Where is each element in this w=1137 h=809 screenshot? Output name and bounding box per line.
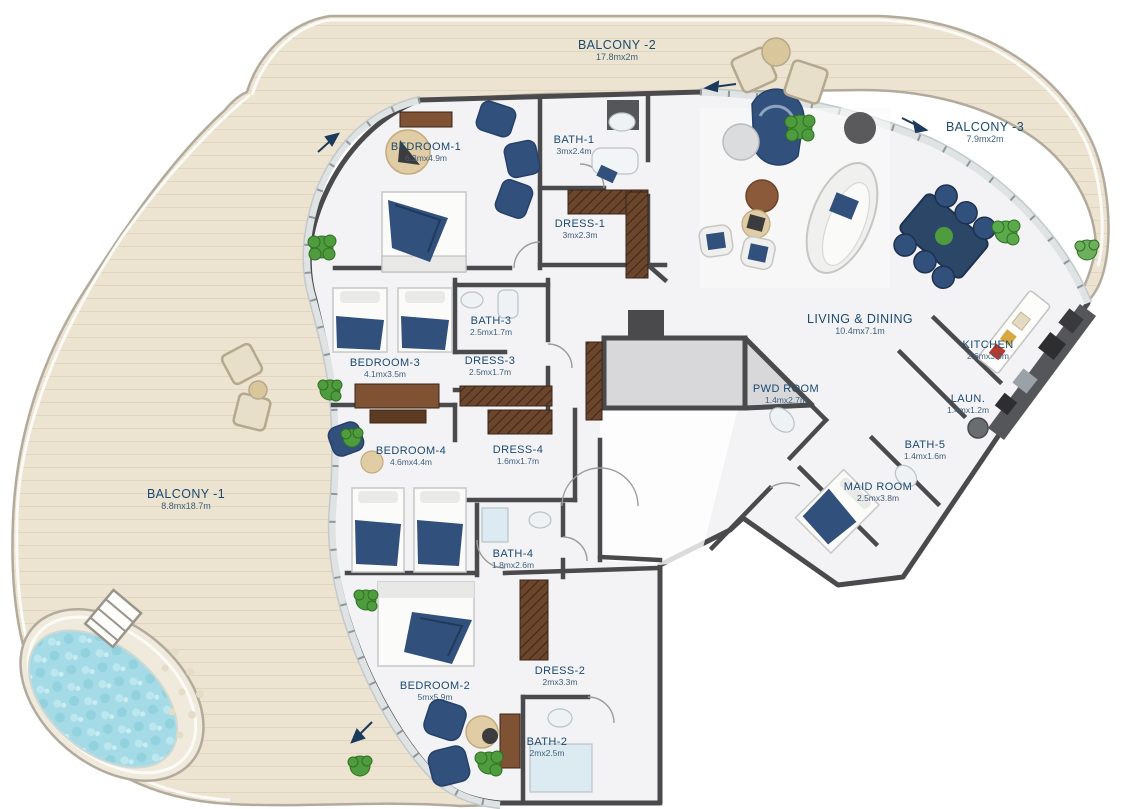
floor-plan-drawing <box>0 0 1137 809</box>
washing-machine-icon <box>968 418 988 438</box>
floor-plan-stage: BALCONY -217.8mx2m BALCONY -37.9mx2m BAL… <box>0 0 1137 809</box>
shaft-block <box>628 310 664 338</box>
structural-column <box>844 112 876 144</box>
